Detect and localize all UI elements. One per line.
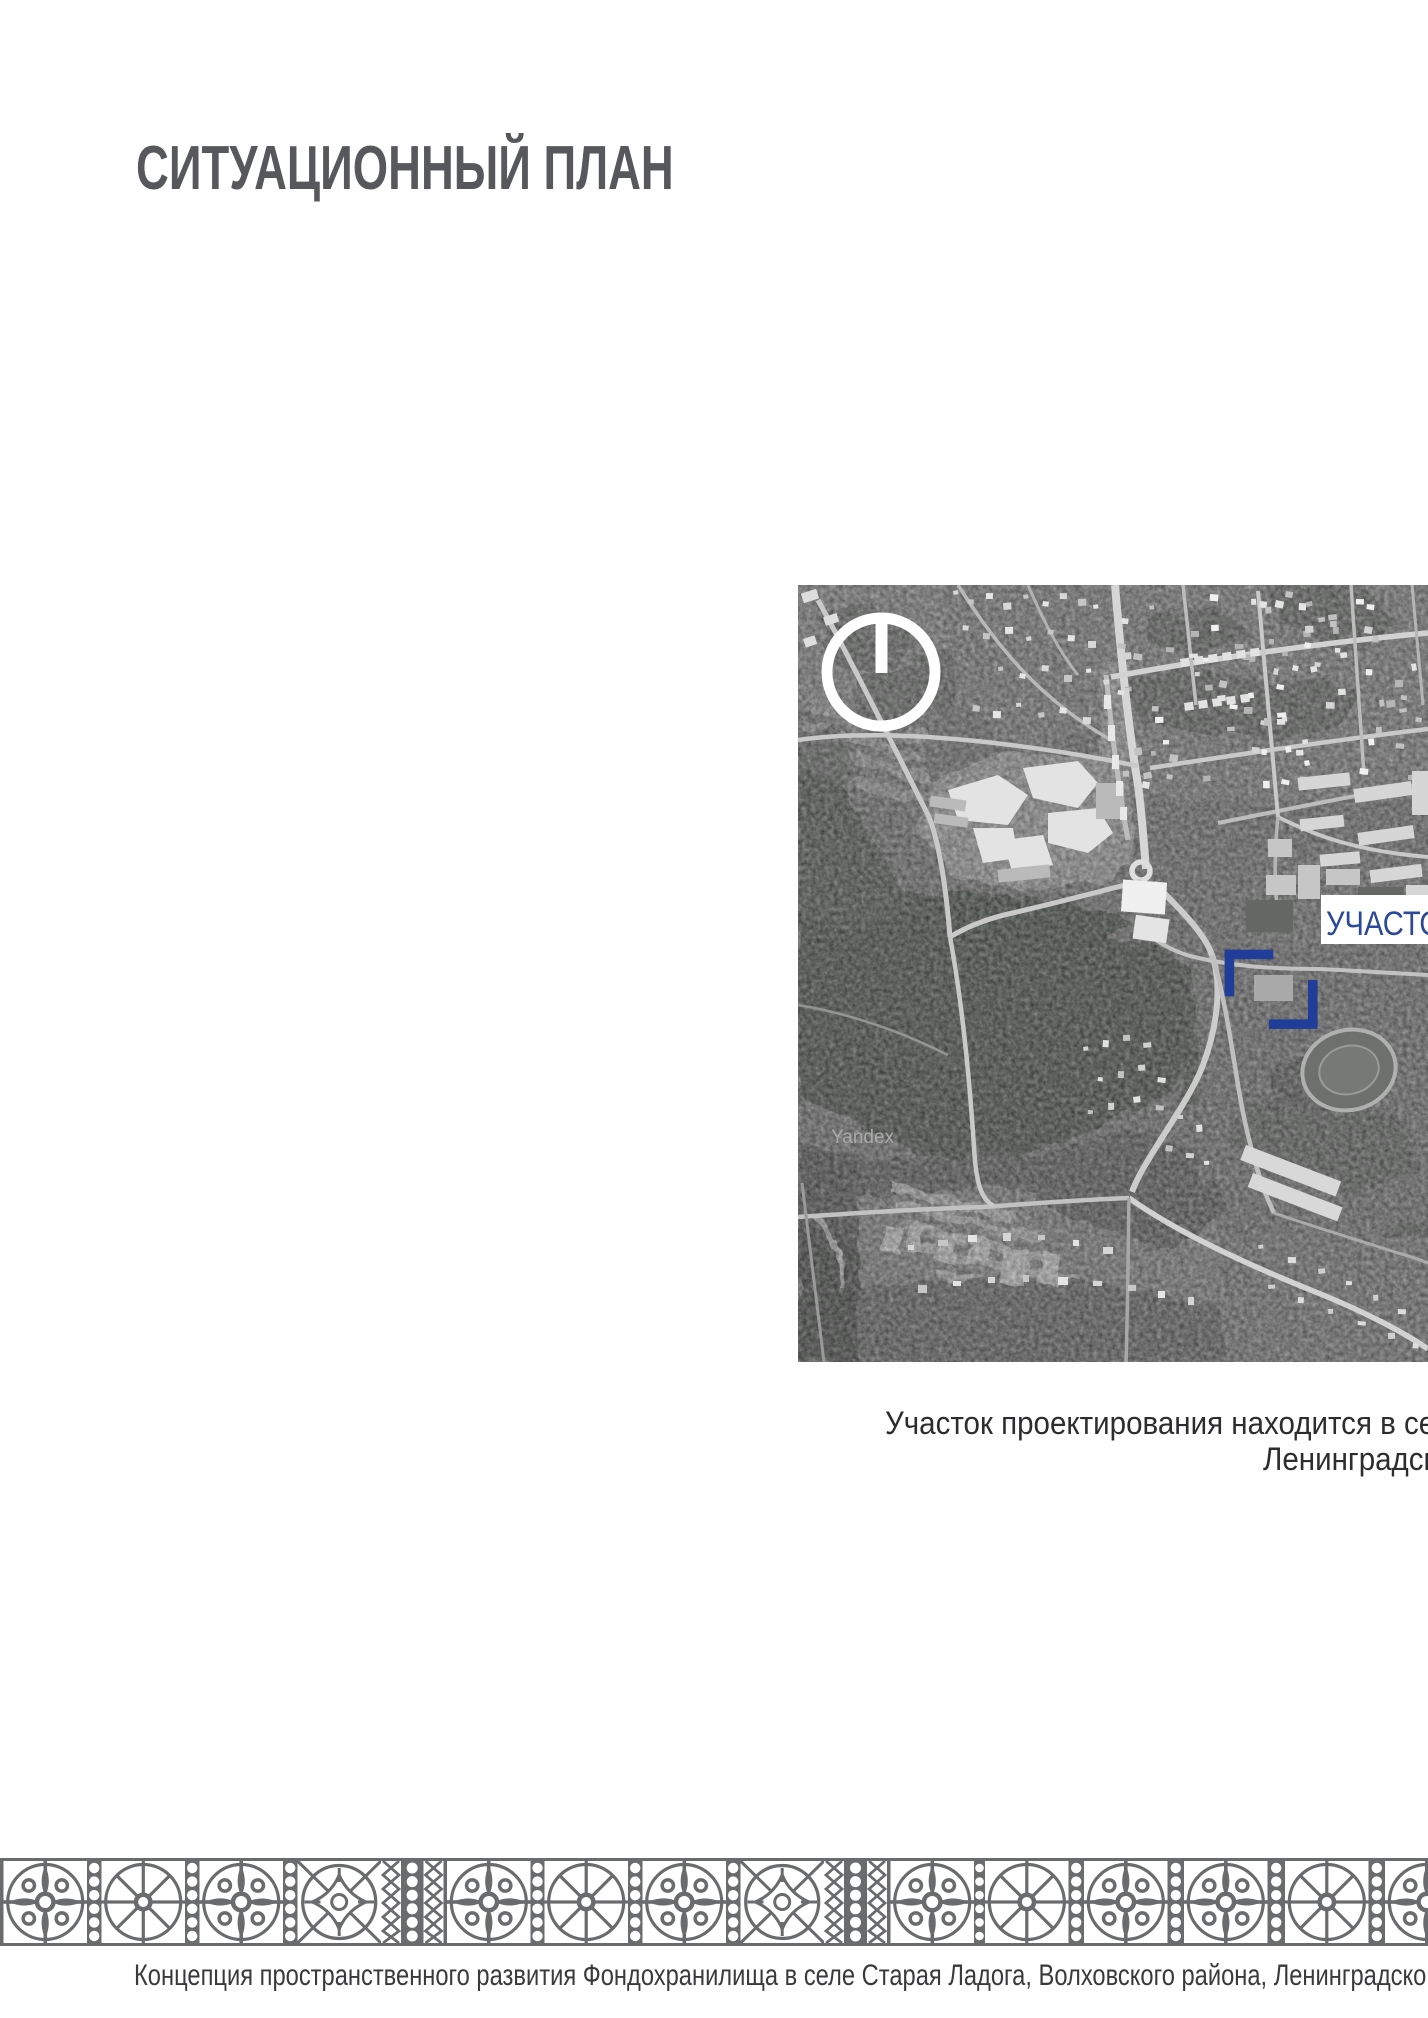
svg-text:Yandex: Yandex xyxy=(831,1127,895,1148)
svg-text:УЧАСТОК: УЧАСТОК xyxy=(1326,905,1428,943)
